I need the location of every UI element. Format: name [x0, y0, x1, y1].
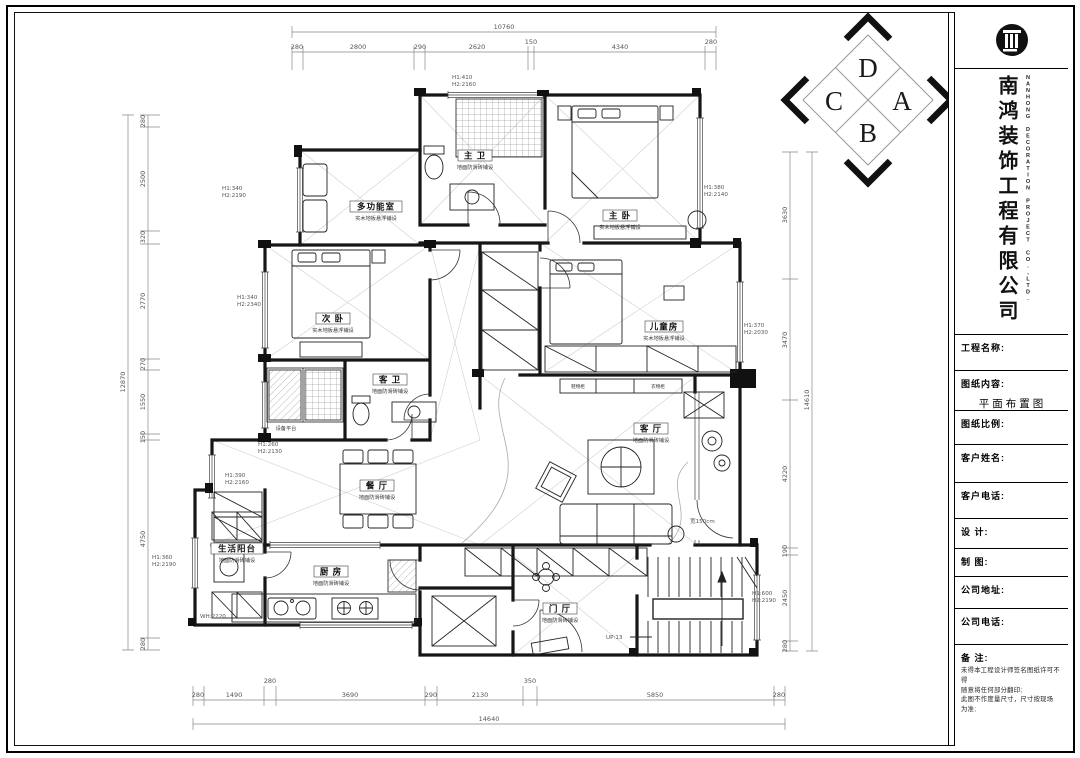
svg-text:H1:380: H1:380 — [704, 185, 725, 191]
company-name-cn: 南鸿装饰工程有限公司 — [992, 75, 1021, 334]
svg-text:H2:2160: H2:2160 — [225, 480, 249, 486]
svg-text:H2:2340: H2:2340 — [237, 302, 261, 308]
accent-chair — [536, 462, 577, 503]
svg-text:H1:340: H1:340 — [222, 186, 243, 192]
svg-text:350: 350 — [524, 677, 536, 685]
svg-text:H2:2160: H2:2160 — [452, 82, 476, 88]
svg-text:地面防滑砖铺设: 地面防滑砖铺设 — [313, 579, 349, 587]
field-client-phone: 客户电话: — [955, 483, 1068, 519]
svg-text:H2:2030: H2:2030 — [744, 330, 768, 336]
svg-text:280: 280 — [139, 115, 147, 127]
ac-unit — [269, 370, 301, 420]
window-lines — [191, 91, 761, 640]
svg-text:地面防滑砖铺设: 地面防滑砖铺设 — [359, 493, 395, 501]
svg-text:2450: 2450 — [781, 590, 789, 607]
elevator — [432, 596, 496, 646]
shoe-cabinet — [531, 637, 569, 655]
room-label-service-balcony: 生活阳台 — [218, 544, 256, 554]
svg-text:4340: 4340 — [612, 43, 629, 51]
compass-letter-left: C — [825, 86, 843, 116]
svg-text:H1:360: H1:360 — [152, 555, 173, 561]
room-label-kitchen: 厨 房 — [320, 567, 342, 577]
field-drawing-scale: 图纸比例: — [955, 411, 1068, 445]
svg-text:320: 320 — [139, 231, 147, 243]
room-label-second-bed: 次 卧 — [322, 314, 344, 324]
svg-text:280: 280 — [773, 691, 785, 699]
drawing-sheet: 10760 280 2800 290 2620 150 4340 280 146… — [0, 0, 1080, 758]
compass-letter-right: A — [892, 86, 912, 116]
company-logo — [955, 12, 1068, 69]
svg-text:2130: 2130 — [472, 691, 489, 699]
field-drafter: 制 图: — [955, 549, 1068, 577]
compass-letter-bottom: B — [859, 118, 877, 148]
room-label-living: 客 厅 — [639, 424, 662, 434]
dimension-chain-right — [782, 152, 818, 651]
svg-text:150: 150 — [525, 38, 537, 46]
svg-text:190: 190 — [781, 545, 789, 557]
svg-text:1550: 1550 — [139, 394, 147, 411]
svg-text:5850: 5850 — [647, 691, 664, 699]
svg-text:实木地板悬浮铺设: 实木地板悬浮铺设 — [599, 223, 641, 231]
stairs — [630, 557, 757, 653]
field-designer: 设 计: — [955, 519, 1068, 549]
dimension-chain-left — [122, 115, 160, 650]
balcony-plants — [702, 431, 730, 471]
svg-text:H2:2190: H2:2190 — [752, 598, 776, 604]
remark-line: 未得本工程设计师签名图纸许可不得 — [961, 666, 1064, 686]
cabinet-label-1: 鞋物柜 — [571, 383, 585, 390]
fridge — [388, 560, 416, 592]
svg-text:H2:2140: H2:2140 — [704, 192, 728, 198]
field-client-name: 客户姓名: — [955, 445, 1068, 483]
field-drawing-content: 图纸内容: 平面布置图 — [955, 371, 1068, 411]
room-label-kids-room: 儿童房 — [649, 322, 679, 332]
remark-line: 随意将任何部分翻印; — [961, 686, 1064, 696]
svg-text:290: 290 — [425, 691, 437, 699]
compass: D A B C — [785, 17, 948, 183]
svg-text:150: 150 — [139, 431, 147, 443]
svg-text:14640: 14640 — [479, 715, 500, 723]
field-company-address: 公司地址: — [955, 577, 1068, 609]
drawing-content-value: 平面布置图 — [961, 396, 1064, 411]
svg-text:3630: 3630 — [781, 207, 789, 224]
balcony-fixtures — [212, 512, 262, 618]
svg-text:280: 280 — [139, 638, 147, 650]
balcony-width-note: 宽150cm — [690, 517, 715, 525]
company-name-en: NANHONG DECORATION PROJECT CO.,LTD. — [1025, 75, 1031, 334]
remark-line: 此图不作度量尺寸，尺寸按现场 — [961, 695, 1064, 705]
window-fills — [191, 91, 761, 640]
svg-text:270: 270 — [139, 358, 147, 370]
title-block: 南鸿装饰工程有限公司 NANHONG DECORATION PROJECT CO… — [948, 12, 1068, 746]
room-label-master-bath: 主 卫 — [464, 151, 486, 161]
svg-text:3690: 3690 — [342, 691, 359, 699]
svg-text:280: 280 — [192, 691, 204, 699]
svg-text:2770: 2770 — [139, 293, 147, 310]
company-name-block: 南鸿装饰工程有限公司 NANHONG DECORATION PROJECT CO… — [955, 69, 1068, 335]
svg-text:10760: 10760 — [494, 23, 515, 31]
remark-section: 备 注: 未得本工程设计师签名图纸许可不得 随意将任何部分翻印; 此图不作度量尺… — [955, 645, 1068, 746]
svg-text:H1:370: H1:370 — [744, 323, 765, 329]
room-label-equipment: 设备平台 — [276, 424, 297, 432]
svg-text:H2:2190: H2:2190 — [222, 193, 246, 199]
svg-text:12870: 12870 — [119, 372, 127, 393]
second-bed-furniture — [292, 250, 385, 357]
svg-text:290: 290 — [414, 43, 426, 51]
cabinet-label-2: 衣物柜 — [651, 383, 665, 390]
svg-text:1490: 1490 — [226, 691, 243, 699]
hatched-areas — [267, 99, 542, 592]
room-label-dining: 餐 厅 — [365, 481, 388, 491]
stairs-up-note: UP:13 — [606, 635, 623, 641]
master-bath-shower — [456, 99, 542, 157]
remark-line: 为准; — [961, 705, 1064, 715]
floor-plan-svg: 10760 280 2800 290 2620 150 4340 280 146… — [0, 0, 948, 758]
svg-text:14610: 14610 — [803, 390, 811, 411]
svg-text:H1:340: H1:340 — [237, 295, 258, 301]
field-project-name: 工程名称: — [955, 335, 1068, 371]
column-logo-icon — [993, 21, 1031, 59]
svg-text:2800: 2800 — [350, 43, 367, 51]
svg-text:实木地板悬浮铺设: 实木地板悬浮铺设 — [643, 334, 685, 342]
svg-text:H2:2130: H2:2130 — [258, 449, 282, 455]
room-label-foyer: 门 厅 — [549, 604, 571, 614]
kids-room-furniture — [545, 260, 736, 372]
guest-bath-shower — [305, 370, 341, 420]
svg-text:地面防滑砖铺设: 地面防滑砖铺设 — [633, 436, 669, 444]
room-label-multi-room: 多功能室 — [357, 202, 395, 212]
kitchen-window-note: WH:2220 — [200, 614, 226, 620]
svg-text:4750: 4750 — [139, 531, 147, 548]
svg-text:H1:600: H1:600 — [752, 591, 773, 597]
svg-text:地面防滑砖铺设: 地面防滑砖铺设 — [372, 387, 408, 395]
multi-room-furniture — [303, 164, 327, 232]
svg-text:2500: 2500 — [139, 171, 147, 188]
svg-text:H2:2190: H2:2190 — [152, 562, 176, 568]
svg-text:2620: 2620 — [469, 43, 486, 51]
guest-bath-fixtures — [352, 396, 436, 425]
field-company-phone: 公司电话: — [955, 609, 1068, 645]
living-cabinet — [684, 392, 724, 418]
svg-text:3470: 3470 — [781, 332, 789, 349]
svg-text:280: 280 — [705, 38, 717, 46]
svg-text:4220: 4220 — [781, 466, 789, 483]
svg-text:实木地板悬浮铺设: 实木地板悬浮铺设 — [355, 214, 397, 222]
svg-text:280: 280 — [264, 677, 276, 685]
svg-text:280: 280 — [781, 640, 789, 652]
svg-text:H1:390: H1:390 — [225, 473, 246, 479]
room-label-guest-bath: 客 卫 — [378, 375, 401, 385]
hall-closet — [482, 252, 538, 370]
svg-text:地面防滑砖铺设: 地面防滑砖铺设 — [457, 163, 493, 171]
svg-text:实木地板悬浮铺设: 实木地板悬浮铺设 — [312, 326, 354, 334]
compass-letter-top: D — [858, 53, 878, 83]
living-sofa — [560, 504, 672, 544]
svg-text:280: 280 — [291, 43, 303, 51]
svg-text:H1:410: H1:410 — [452, 75, 473, 81]
svg-text:H1:260: H1:260 — [258, 442, 279, 448]
svg-text:地面防滑砖铺设: 地面防滑砖铺设 — [219, 556, 255, 564]
dimension-chain-bottom — [193, 686, 785, 730]
room-label-master-bed: 主 卧 — [609, 211, 631, 221]
foyer-top-cabinets — [465, 548, 647, 576]
svg-text:地面防滑砖铺设: 地面防滑砖铺设 — [542, 616, 578, 624]
